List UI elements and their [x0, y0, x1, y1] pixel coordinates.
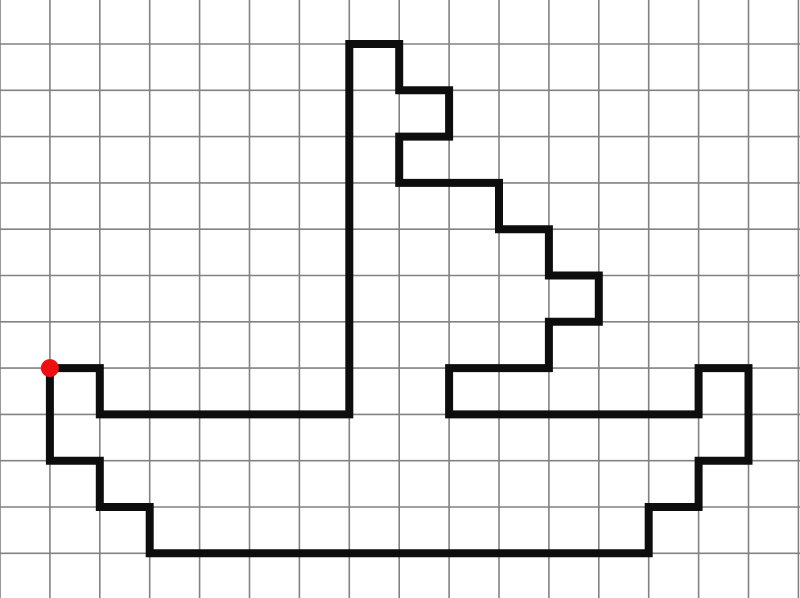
drawing-svg[interactable]	[0, 0, 800, 598]
start-point-marker	[41, 359, 59, 377]
grid-paper-canvas[interactable]	[0, 0, 800, 598]
